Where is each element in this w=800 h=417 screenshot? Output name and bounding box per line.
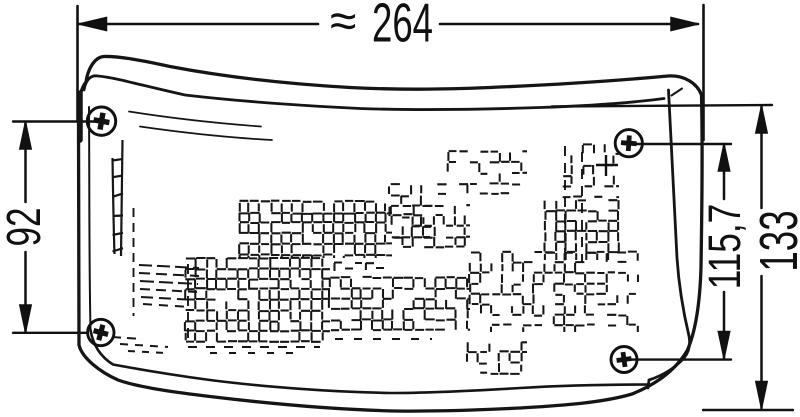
svg-text:92: 92 [0,208,50,247]
svg-text:≈: ≈ [330,0,356,48]
svg-text:133: 133 [748,210,800,271]
svg-text:115,7: 115,7 [699,204,750,290]
svg-text:264: 264 [372,0,433,53]
